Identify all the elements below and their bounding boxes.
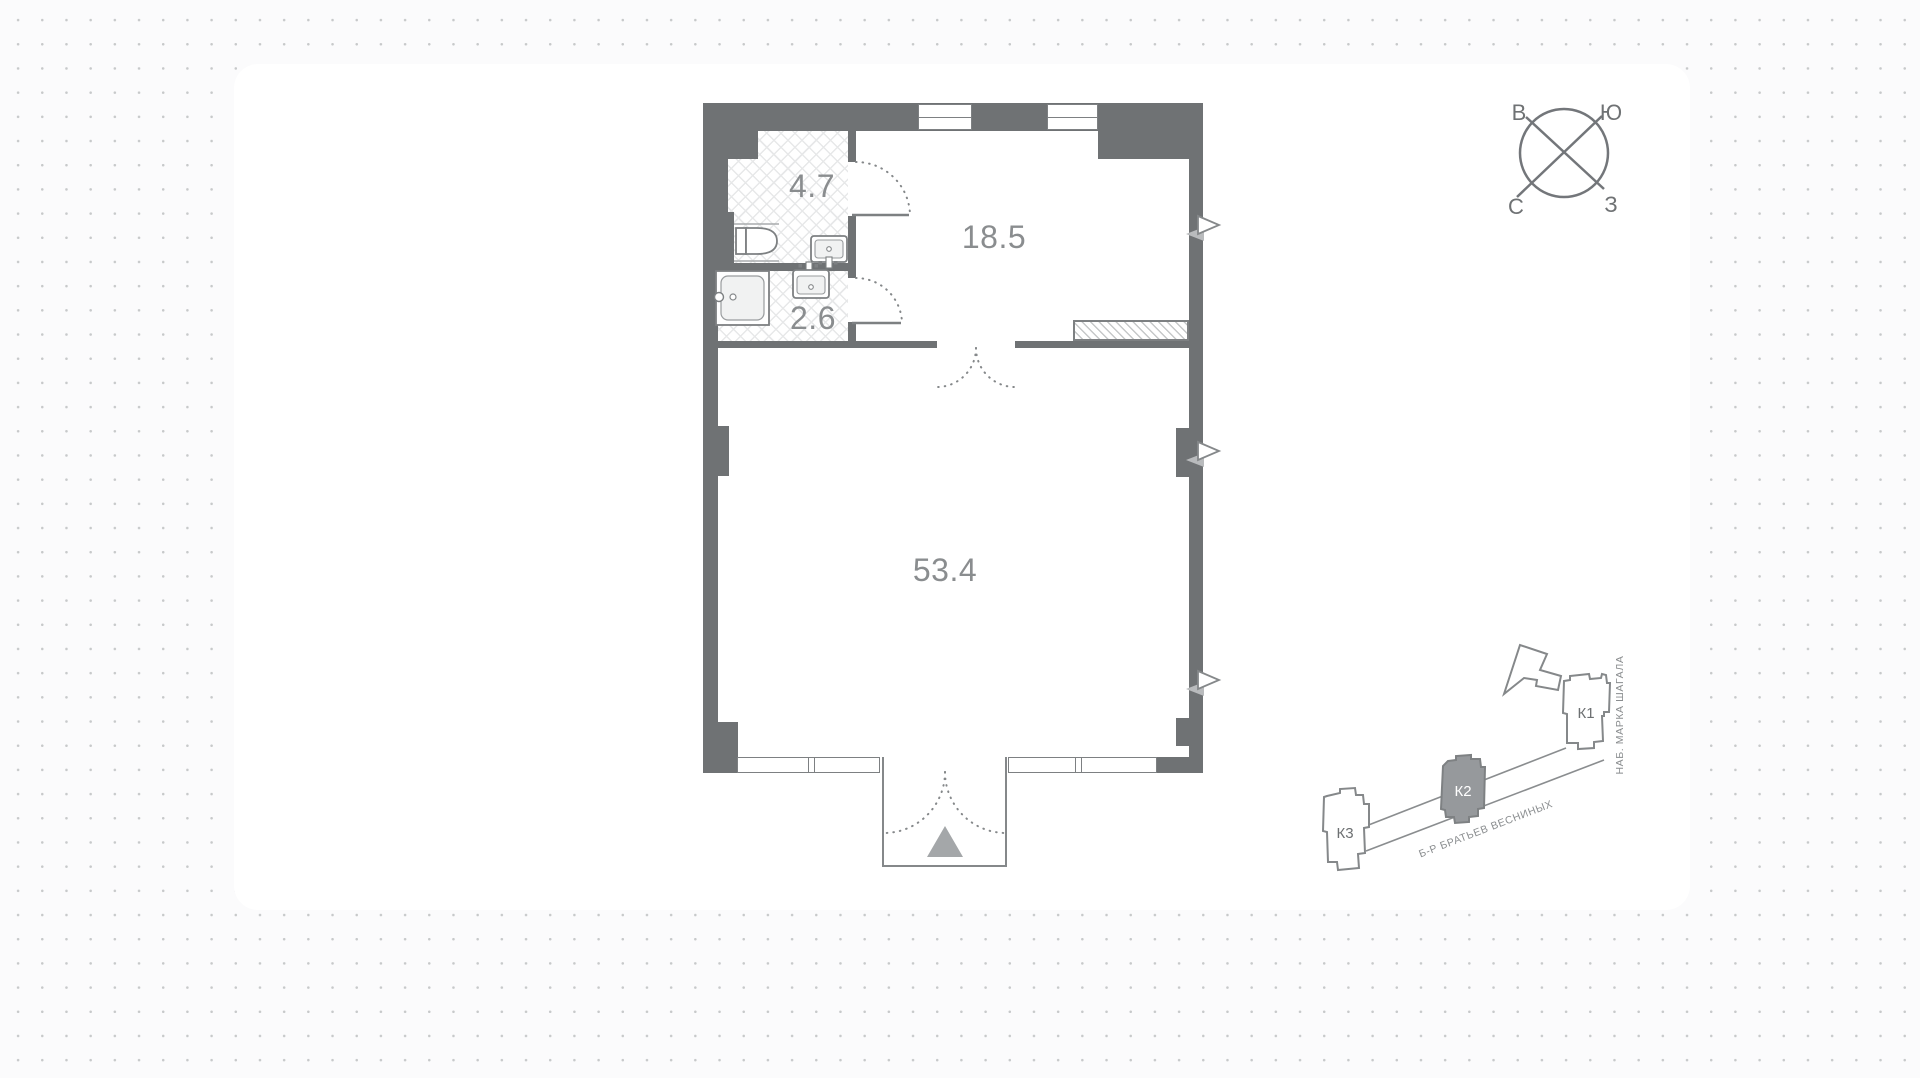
building-annex-shape (1504, 645, 1561, 694)
facade-marker-icon-3 (1198, 671, 1219, 689)
room-area-wc: 2.6 (771, 300, 855, 336)
compass-label-west: З (1604, 192, 1617, 217)
toilet-icon (734, 224, 779, 261)
facade-markers (1186, 216, 1219, 696)
shower-icon (715, 271, 770, 325)
wc-door-arc (856, 278, 902, 324)
compass-icon: В Ю С З (1508, 100, 1622, 219)
compass-label-south: Ю (1600, 100, 1622, 125)
room-area-living: 53.4 (895, 552, 995, 588)
facade-marker-icon-1 (1198, 216, 1219, 234)
facade-marker-icon-2 (1198, 442, 1219, 460)
door-arcs (856, 162, 1015, 833)
site-map: К1 К2 К3 Б-Р БРАТЬЕВ ВЕСНИНЫХ НАБ. МАРКА… (1323, 645, 1626, 870)
compass-label-north: С (1508, 194, 1524, 219)
bathroom-door-arc (856, 162, 910, 216)
street-label-embankment: НАБ. МАРКА ШАГАЛА (1614, 655, 1626, 774)
building-k1-label: К1 (1577, 705, 1594, 722)
floor-plan-page: В Ю С З К1 К2 К3 Б-Р БРАТЬЕВ ВЕСНИНЫХ НА… (0, 0, 1920, 1078)
building-k3-label: К3 (1336, 825, 1353, 842)
wc-sink-icon (793, 262, 829, 298)
room-area-hallway: 18.5 (944, 219, 1044, 255)
bathroom-sink-icon (811, 236, 847, 268)
room-area-bathroom: 4.7 (770, 168, 854, 204)
compass-label-east: В (1512, 100, 1527, 125)
interior-door-arc-right (976, 348, 1015, 387)
building-k2-label: К2 (1454, 783, 1471, 800)
street-label-boulevard: Б-Р БРАТЬЕВ ВЕСНИНЫХ (1417, 798, 1554, 860)
plan-vector-overlay: В Ю С З К1 К2 К3 Б-Р БРАТЬЕВ ВЕСНИНЫХ НА… (0, 0, 1920, 1078)
interior-door-arc-left (937, 348, 976, 387)
